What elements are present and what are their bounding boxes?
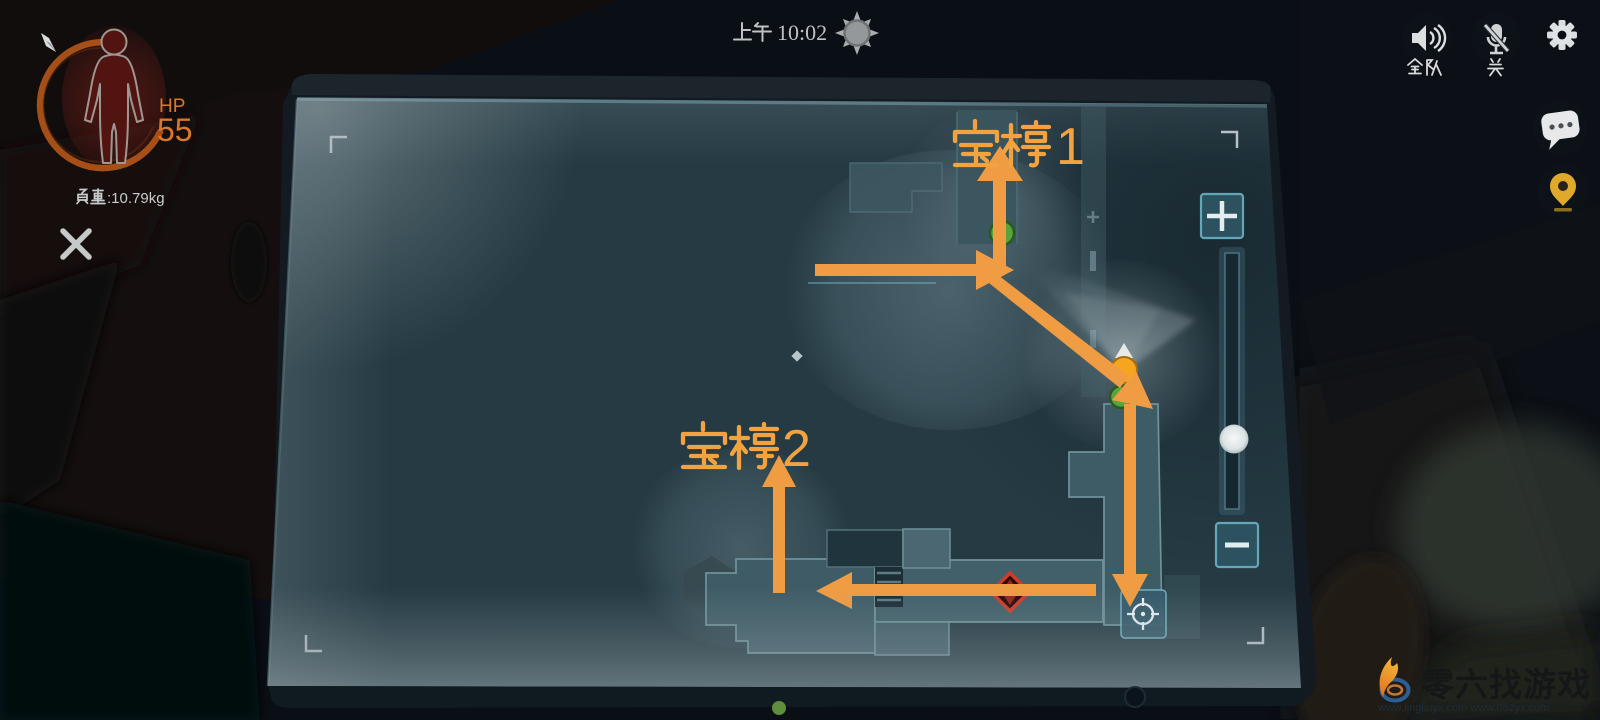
svg-text:www.lingliuyx.com www.05zyx.: www.lingliuyx.com www.05zyx.com — [1377, 702, 1549, 714]
svg-text:零六找游戏: 零六找游戏 — [1421, 666, 1591, 703]
svg-text::10.79kg: :10.79kg — [107, 190, 165, 207]
svg-text:55: 55 — [157, 112, 193, 148]
svg-text:10:02: 10:02 — [777, 20, 827, 45]
